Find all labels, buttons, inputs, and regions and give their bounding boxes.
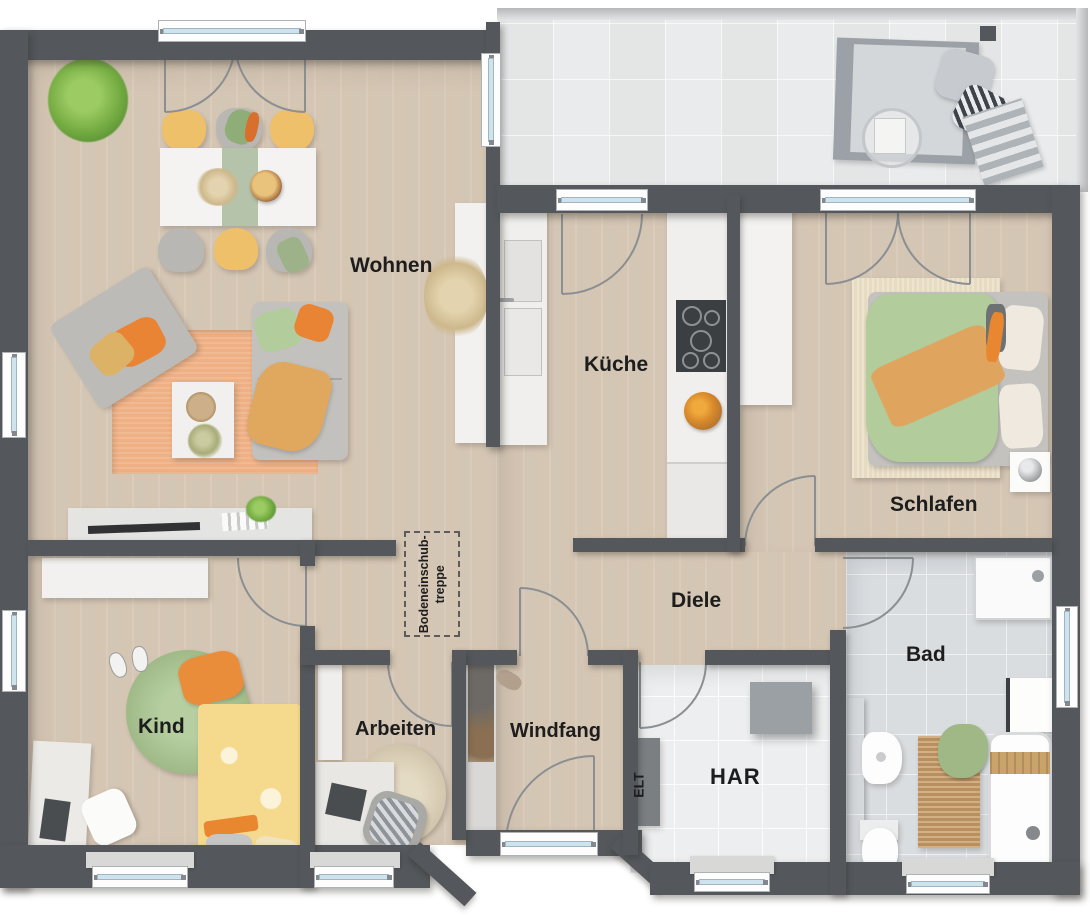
table-centerpiece [196, 168, 240, 206]
dried-flowers [424, 252, 488, 340]
table-bowl [250, 170, 282, 202]
window-kind-left [2, 610, 26, 692]
label-diele: Diele [671, 589, 721, 613]
cooktop-burner-1 [682, 306, 702, 326]
wall-diele-north [573, 538, 745, 552]
wall-bad-west [830, 630, 846, 895]
shower-fixture [1032, 570, 1044, 582]
fruit-bowl [684, 392, 722, 430]
wall-kind-east [300, 626, 315, 888]
washbasin-drain [876, 752, 886, 762]
har-appliance [750, 682, 812, 734]
window-bad-right [1056, 606, 1078, 708]
plant-living [48, 58, 128, 142]
nightstand-lamp [1018, 458, 1042, 482]
bed-pillow-2 [998, 383, 1044, 450]
wall-schlafen-south [815, 538, 1052, 552]
cooktop-burner-4 [682, 352, 699, 369]
wall-windfang-har [623, 650, 638, 855]
terrace-post [980, 26, 996, 41]
wall-right [1052, 185, 1080, 895]
wall-left [0, 30, 28, 888]
attic-stairs-line2: treppe [432, 531, 448, 637]
cooktop-burner-2 [704, 310, 720, 326]
label-arbeiten: Arbeiten [355, 718, 436, 741]
dining-chair-yellow-1 [162, 110, 206, 152]
dining-chair-gray-2 [158, 228, 204, 272]
window-har-bottom [694, 872, 770, 892]
label-elt-wrap: ELT [628, 756, 650, 814]
window-wohnen-left [2, 352, 26, 438]
bathtub-faucet [1026, 826, 1040, 840]
label-elt: ELT [631, 772, 647, 797]
cooktop-burner-5 [703, 352, 720, 369]
attic-stairs-label: Bodeneinschub- treppe [404, 531, 460, 637]
label-schlafen: Schlafen [890, 493, 978, 517]
floor-plan: Bodeneinschub- treppe [0, 0, 1090, 915]
dining-chair-yellow-3 [214, 228, 258, 270]
towel-green [938, 724, 988, 778]
window-bad-bottom [906, 874, 990, 894]
wall-kueche-east [727, 195, 740, 552]
door-schlafen-terrace [820, 189, 976, 211]
label-kueche: Küche [584, 353, 648, 377]
label-wohnen: Wohnen [350, 254, 432, 278]
front-door [500, 832, 598, 856]
attic-stairs-line1: Bodeneinschub- [416, 531, 432, 637]
terrace-edge-right [1076, 8, 1088, 192]
coffee-table-bowl [186, 392, 216, 422]
kids-desk-laptop [39, 798, 70, 841]
bathtub-caddy [990, 752, 1050, 774]
label-windfang: Windfang [510, 720, 601, 743]
window-kind-bottom [92, 866, 188, 888]
dining-chair-yellow-2 [270, 110, 314, 152]
terrace-tray [874, 118, 906, 154]
cooktop-burner-3 [690, 330, 712, 352]
label-kind: Kind [138, 715, 185, 739]
office-shelf [318, 660, 342, 760]
door-wohnen-terrace [158, 20, 306, 42]
wall-wohnen-south [28, 540, 396, 556]
window-wohnen-terrace-side [481, 53, 501, 147]
kitchen-sink-lower [504, 308, 542, 376]
kids-wardrobe [42, 558, 208, 598]
terrace-edge-top [497, 8, 1088, 20]
wall-diele-south-right [705, 650, 830, 665]
door-kueche-terrace [556, 189, 648, 211]
bath-cabinet [1006, 678, 1056, 732]
wall-arbeiten-north [300, 650, 390, 665]
label-bad: Bad [906, 643, 946, 667]
kitchen-lower-cabinet [667, 462, 727, 542]
coat-items [468, 664, 494, 762]
kitchen-sink-upper [504, 240, 542, 302]
sideboard-plant [246, 496, 276, 522]
bedroom-closet [740, 207, 792, 405]
wall-arbeiten-windfang [452, 650, 466, 840]
coffee-table-plant [188, 424, 222, 458]
shower [974, 556, 1052, 620]
window-arbeiten-bottom [314, 866, 394, 888]
label-har: HAR [710, 764, 761, 790]
wall-kind-east-stub [300, 540, 315, 566]
